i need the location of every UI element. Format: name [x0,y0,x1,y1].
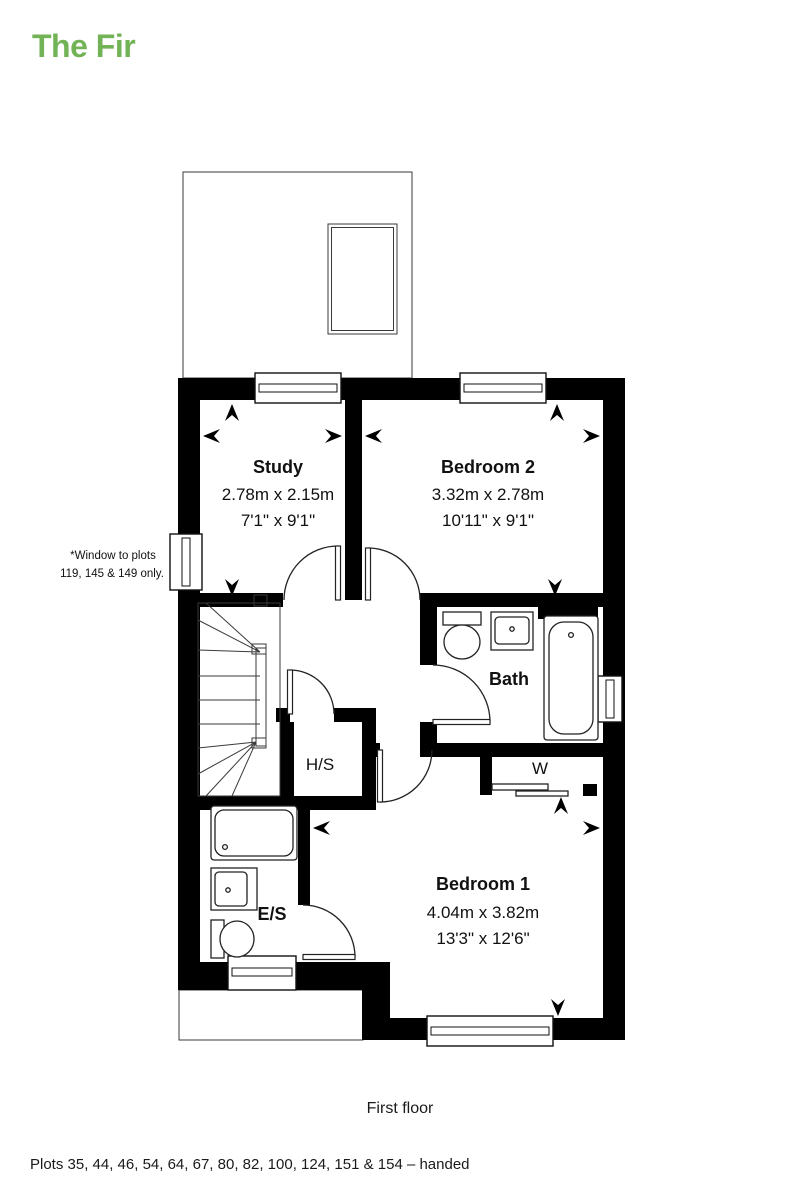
floorplan-drawing: Study 2.78m x 2.15m 7'1" x 9'1" Bedroom … [0,0,800,1200]
bedroom1-metric: 4.04m x 3.82m [427,903,539,922]
bedroom2-arrow-right [583,429,600,443]
bedroom1-imperial: 13'3" x 12'6" [436,929,529,948]
study-door [284,546,341,600]
bedroom2-door [366,548,421,600]
floor-label: First floor [0,1100,800,1118]
bath-door [433,665,490,725]
bedroom2-imperial: 10'11" x 9'1" [442,511,534,530]
window-note-line2: 119, 145 & 149 only. [60,568,164,580]
shower-icon [211,806,297,860]
wardrobe-name: W [532,759,548,778]
bedroom1-window [427,1016,553,1046]
bedroom1-door [378,750,433,802]
roof-outline [183,172,412,378]
bedroom2-name: Bedroom 2 [441,457,535,477]
ensuite-toilet-icon [211,920,254,958]
ensuite-basin-icon [211,868,257,910]
study-name: Study [253,457,303,477]
porch-outline [179,990,363,1040]
ensuite-window [228,956,296,990]
toilet-icon [443,612,481,659]
ensuite-door [303,905,355,960]
plots-note: Plots 35, 44, 46, 54, 64, 67, 80, 82, 10… [30,1156,470,1173]
study-arrow-right [325,429,342,443]
study-imperial: 7'1" x 9'1" [241,511,315,530]
wardrobe-sliding-door [492,784,568,796]
study-window [255,373,341,403]
ensuite-name: E/S [257,904,286,924]
bedroom1-arrow-left [313,821,330,835]
bedroom1-arrow-down [551,999,565,1016]
study-metric: 2.78m x 2.15m [222,485,334,504]
floorplan-page: The Fir [0,0,800,1200]
ensuite-fixtures [211,806,297,958]
stairs [198,595,280,796]
basin-icon [491,612,533,650]
study-arrow-up [225,404,239,421]
bathtub-icon [544,616,598,740]
landing-window-starred [170,534,202,590]
bedroom2-metric: 3.32m x 2.78m [432,485,544,504]
bath-name: Bath [489,669,529,689]
bedroom2-arrow-up [550,404,564,421]
bath-window [598,676,622,722]
bedroom1-name: Bedroom 1 [436,874,530,894]
window-note-line1: *Window to plots [70,550,156,562]
hs-name: H/S [306,755,334,774]
bedroom2-arrow-left [365,429,382,443]
bedroom1-arrow-up [554,797,568,814]
hs-door [288,670,335,714]
bedroom2-window [460,373,546,403]
study-arrow-left [203,429,220,443]
bedroom1-arrow-right [583,821,600,835]
